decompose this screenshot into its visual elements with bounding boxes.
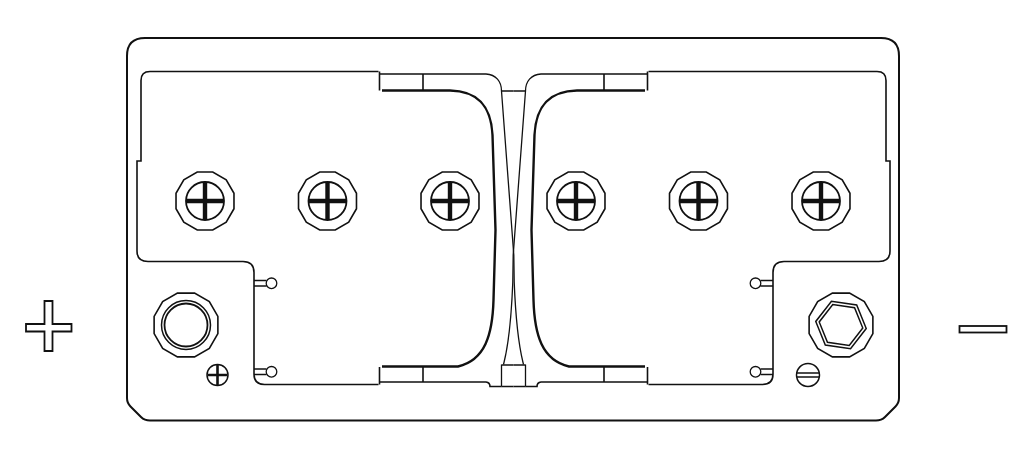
minus-symbol xyxy=(960,326,1007,333)
battery-drawing-canvas xyxy=(0,0,1024,469)
vent-cap-6 xyxy=(792,172,850,230)
phillips-screw xyxy=(207,365,228,386)
vent-cap-5 xyxy=(670,172,728,230)
vent-cap-3 xyxy=(421,172,479,230)
vent-cap-1 xyxy=(176,172,234,230)
slotted-screw xyxy=(797,364,820,387)
positive-terminal xyxy=(154,293,218,357)
battery-diagram xyxy=(0,0,1024,469)
negative-terminal xyxy=(809,293,873,357)
vent-cap-2 xyxy=(299,172,357,230)
battery-case-outline xyxy=(127,38,899,421)
vent-cap-4 xyxy=(547,172,605,230)
plus-symbol xyxy=(26,301,72,351)
